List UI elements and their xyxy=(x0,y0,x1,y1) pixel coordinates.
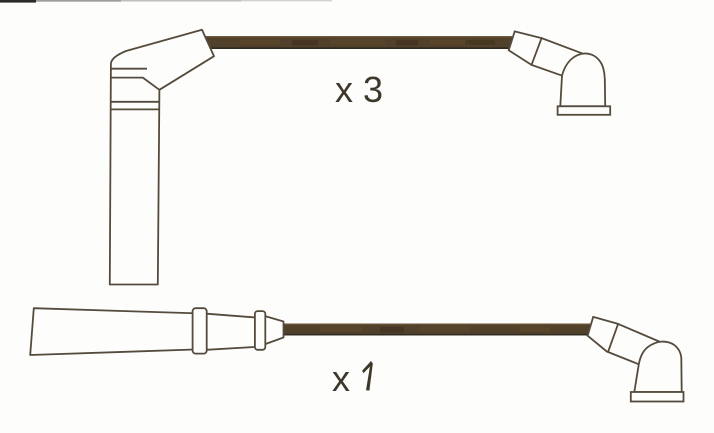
svg-text:x 3: x 3 xyxy=(335,69,383,110)
svg-text:x: x xyxy=(332,358,350,399)
